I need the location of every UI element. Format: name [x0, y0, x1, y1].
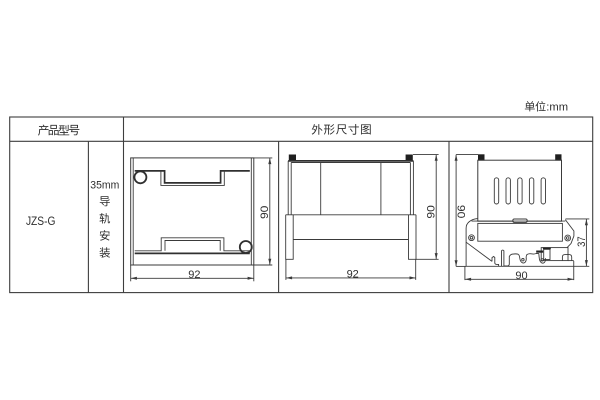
svg-text:90: 90	[515, 270, 527, 282]
svg-text:92: 92	[188, 269, 200, 281]
svg-text:37: 37	[576, 236, 588, 247]
svg-text:92: 92	[347, 269, 359, 281]
svg-text:90: 90	[455, 205, 467, 219]
svg-text:JZS-G: JZS-G	[26, 214, 56, 228]
svg-text:90: 90	[425, 205, 437, 219]
svg-text::mm: :mm	[546, 101, 568, 113]
svg-text:90: 90	[259, 206, 271, 220]
svg-text:35mm: 35mm	[90, 180, 119, 192]
